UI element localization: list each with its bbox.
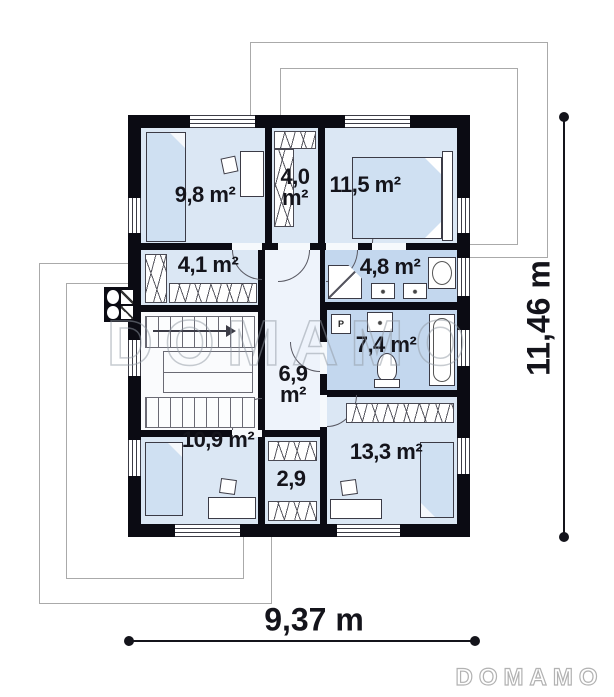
dimension-dot [559, 112, 569, 122]
bathtub [428, 257, 456, 289]
door-opening [232, 243, 262, 250]
blanket-fold [170, 133, 185, 148]
door-opening [320, 395, 327, 427]
window [175, 524, 240, 537]
headboard [442, 151, 453, 241]
wardrobe-shelving [274, 131, 316, 149]
wardrobe-shelving [268, 441, 317, 461]
wardrobe-shelving [169, 283, 257, 303]
room-label-bedroom-13-3: 13,3 m² [350, 439, 422, 465]
chair [221, 156, 239, 175]
blanket-fold [168, 443, 182, 457]
bed [420, 442, 454, 518]
blanket-fold [421, 503, 435, 517]
door-opening [372, 243, 406, 250]
window [337, 524, 400, 537]
window [128, 198, 141, 233]
door-opening [278, 243, 310, 250]
desk [330, 499, 382, 519]
flue-circle [107, 290, 119, 304]
room-label-closet-2-9: 2,9 [276, 466, 305, 492]
dimension-dot [124, 636, 134, 646]
window [457, 258, 470, 296]
sink [403, 283, 427, 299]
window [457, 438, 470, 474]
pillow [425, 222, 441, 238]
window [345, 115, 410, 128]
desk [208, 497, 256, 519]
wardrobe-shelving [346, 403, 454, 423]
bathtub-basin [432, 261, 452, 285]
desk [240, 151, 264, 197]
stair-treads [145, 397, 255, 428]
watermark: DOMAMO [102, 310, 482, 376]
dimension-dot [470, 636, 480, 646]
room-label-bathroom-4-8: 4,8 m² [360, 254, 421, 280]
dimension-label-height: 11,46 m [521, 260, 558, 376]
room-label-bedroom-10-9: 10,9 m² [182, 427, 254, 453]
window [190, 115, 255, 128]
chair [340, 479, 358, 496]
door-opening [326, 243, 358, 250]
area-unit: m² [280, 385, 306, 406]
room-label-bedroom-11-5: 11,5 m² [329, 172, 400, 198]
toilet-tank [374, 379, 400, 388]
dimension-label-width: 9,37 m [264, 602, 364, 639]
dimension-line-vertical [563, 117, 565, 537]
room-label-closet-4-1: 4,1 m² [178, 252, 239, 278]
room-label-wardrobe-4-0: 4,0 m² [280, 167, 309, 209]
wardrobe-shelving [145, 254, 167, 303]
wardrobe-shelving [268, 501, 317, 521]
dimension-dot [559, 532, 569, 542]
sink [371, 283, 395, 299]
window [457, 198, 470, 233]
double-bed [352, 157, 442, 239]
chair [219, 478, 237, 495]
area-unit: m² [282, 188, 308, 209]
window [128, 440, 141, 476]
floor-plan-canvas: 11,46 m 9,37 m [0, 0, 614, 697]
dimension-line-horizontal [129, 640, 475, 642]
pillow [425, 158, 441, 174]
flue-duct [121, 290, 133, 304]
brand-logo: DOMAMO [452, 664, 607, 692]
room-label-bedroom-9-8: 9,8 m² [175, 182, 236, 208]
bed [145, 442, 183, 516]
